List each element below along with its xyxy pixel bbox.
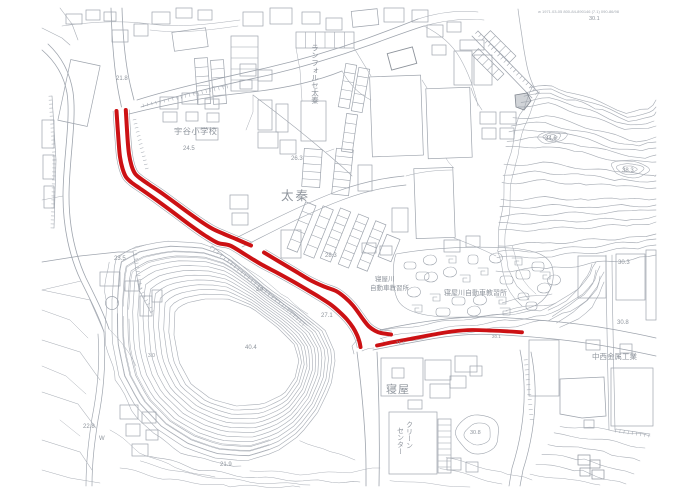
svg-text:21.9: 21.9 xyxy=(220,462,232,468)
svg-text:34.6: 34.6 xyxy=(545,136,557,142)
svg-text:センター: センター xyxy=(397,427,405,455)
svg-text:27.1: 27.1 xyxy=(321,313,333,319)
svg-text:寝屋川: 寝屋川 xyxy=(375,274,395,283)
svg-text:寝屋川自動車教習所: 寝屋川自動車教習所 xyxy=(444,288,507,297)
svg-text:30.8: 30.8 xyxy=(470,430,481,436)
svg-text:38.3: 38.3 xyxy=(622,168,634,174)
svg-text:30.3: 30.3 xyxy=(618,260,630,266)
svg-text:21.8: 21.8 xyxy=(116,76,128,82)
svg-text:w 1971.03-05 800-84-890146 (7.: w 1971.03-05 800-84-890146 (7.1) 090-86/… xyxy=(538,9,620,14)
svg-text:21.4: 21.4 xyxy=(396,340,405,345)
svg-text:3.0: 3.0 xyxy=(256,287,263,293)
svg-text:ランフォルセ太秦: ランフォルセ太秦 xyxy=(310,44,319,106)
svg-text:中西金属工業: 中西金属工業 xyxy=(592,351,637,361)
svg-text:22.8: 22.8 xyxy=(83,424,95,430)
svg-text:W: W xyxy=(99,436,105,442)
svg-text:宇谷小学校: 宇谷小学校 xyxy=(174,126,217,136)
svg-text:30.8: 30.8 xyxy=(617,320,629,326)
svg-text:28.3: 28.3 xyxy=(325,253,337,259)
svg-text:40.4: 40.4 xyxy=(245,345,257,351)
svg-text:30.1: 30.1 xyxy=(589,16,600,22)
svg-text:太秦: 太秦 xyxy=(281,188,310,203)
svg-text:20.1: 20.1 xyxy=(492,334,501,339)
svg-text:自動車教習所: 自動車教習所 xyxy=(370,283,410,292)
svg-text:寝屋: 寝屋 xyxy=(386,382,410,396)
svg-text:3.0: 3.0 xyxy=(148,353,155,359)
svg-text:クリーン: クリーン xyxy=(406,421,414,449)
svg-text:26.3: 26.3 xyxy=(291,156,303,162)
svg-text:23.5: 23.5 xyxy=(114,256,126,262)
svg-text:24.5: 24.5 xyxy=(183,146,195,152)
